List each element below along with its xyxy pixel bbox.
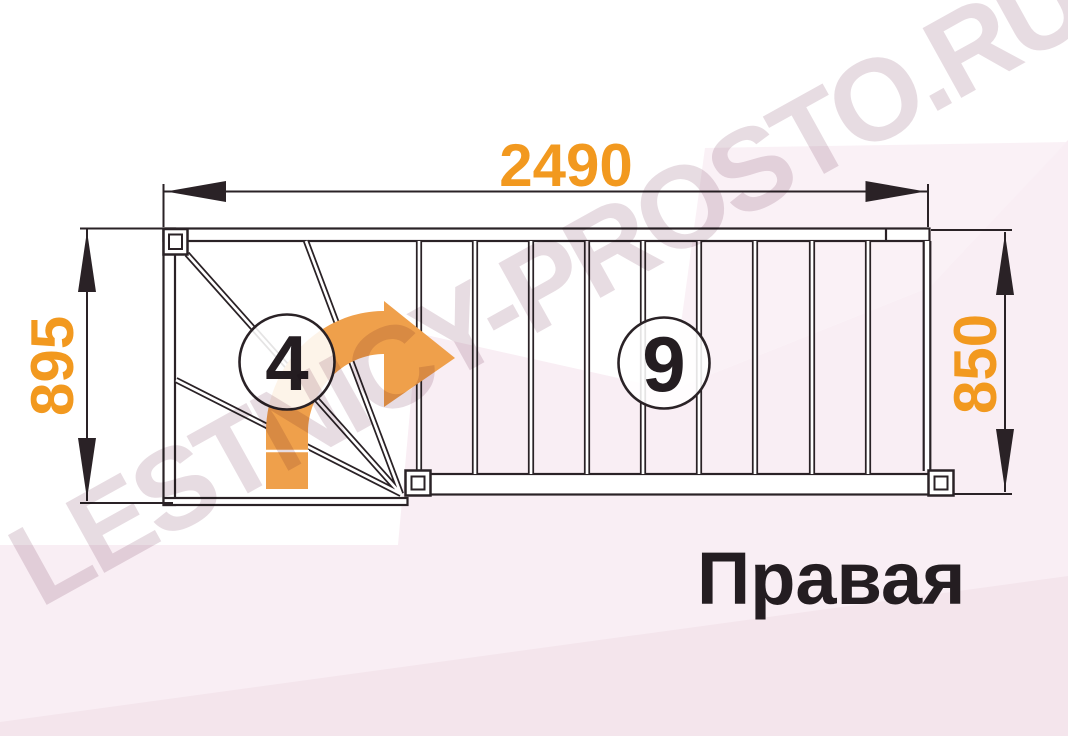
stair-plan-drawing: 2490 895 850 4 9 [0, 0, 1068, 736]
winder-bottom-stringer [164, 498, 408, 505]
newel-post-top-left [164, 229, 188, 255]
dimension-top-arrow-left [166, 181, 226, 202]
dimension-top-label: 2490 [499, 132, 632, 199]
dimension-left-label: 895 [19, 316, 86, 416]
flight-count-label: 9 [642, 320, 685, 408]
newel-post-bottom-right [929, 471, 954, 496]
dimension-left-arrow-down [78, 438, 96, 499]
flight-bottom-stringer [406, 474, 953, 495]
dimension-right-label: 850 [942, 314, 1009, 414]
dimension-left: 895 [19, 229, 173, 504]
step-count-flight-badge: 9 [619, 318, 710, 409]
dimension-left-arrow-up [78, 231, 96, 292]
newel-post-bottom-mid [406, 471, 431, 496]
step-count-winder-badge: 4 [240, 315, 335, 410]
winder-count-label: 4 [265, 319, 308, 407]
page-title: Правая [697, 538, 965, 619]
winder-left-stringer [164, 229, 176, 506]
dimension-left-extension-lines [80, 229, 173, 504]
stair-top-stringer [164, 229, 930, 242]
stair-plan-page: 2490 895 850 4 9 [0, 0, 1068, 736]
